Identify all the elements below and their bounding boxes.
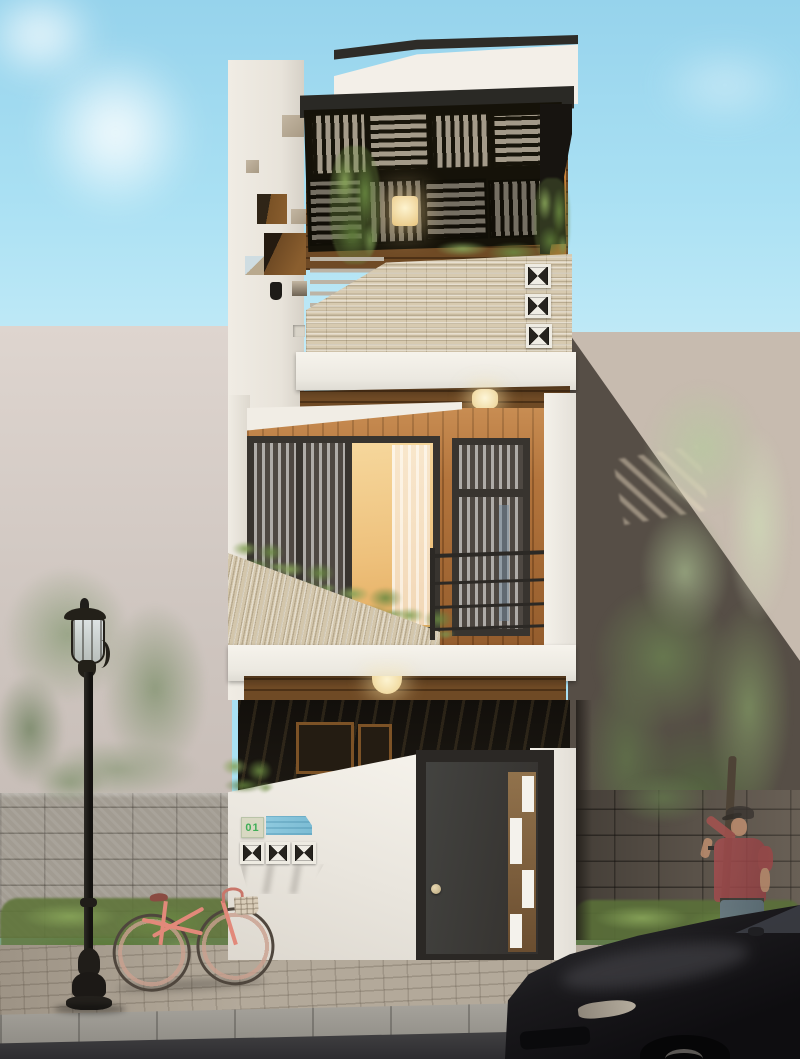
glass-strip-white — [510, 818, 522, 864]
lamp-ring — [80, 898, 97, 907]
glass-strip-white — [522, 776, 534, 812]
door-knob — [431, 884, 441, 894]
wall-niche — [264, 233, 306, 275]
breeze-block — [525, 264, 551, 288]
hanging-vine — [330, 146, 380, 264]
wall-niche — [246, 160, 259, 173]
mid-ceiling-light — [472, 389, 498, 409]
railing-rail — [430, 550, 554, 558]
car-mirror — [748, 927, 764, 936]
breeze-block — [526, 324, 552, 348]
lamp-scroll-arm — [92, 640, 110, 668]
pergola-panel — [424, 178, 488, 240]
bicycle — [101, 880, 267, 998]
railing-bar — [430, 624, 554, 631]
house-number: 01 — [245, 822, 259, 834]
breeze-block — [525, 294, 551, 318]
wall-niche — [282, 115, 304, 137]
railing-bar — [430, 578, 554, 585]
bike-basket — [234, 896, 259, 915]
balcony-wall-lamp — [392, 196, 418, 226]
bike-seat — [150, 893, 168, 902]
house-side-shadow — [576, 700, 592, 940]
architectural-render: 01 — [0, 0, 800, 1059]
name-plate — [266, 816, 312, 835]
breeze-block-vent — [266, 842, 290, 864]
pergola-panel — [368, 112, 430, 172]
house-number-sign: 01 — [241, 817, 264, 838]
lamp-base — [72, 972, 106, 998]
wall-niche — [293, 325, 305, 337]
pedestrian-torso — [714, 838, 766, 902]
door-transom — [459, 445, 523, 489]
tree-overhang-left — [20, 752, 120, 812]
pedestrian-hand-right — [760, 868, 770, 892]
interior-window — [296, 722, 354, 774]
mid-right-column — [544, 393, 576, 655]
wall-niche — [292, 281, 307, 296]
floor-slab — [296, 352, 576, 390]
breeze-block-vent — [240, 842, 264, 864]
lamp-shadow — [54, 1004, 126, 1014]
wall-top-shrub — [216, 754, 278, 796]
breeze-block-vent — [292, 842, 316, 864]
wall-niche — [245, 256, 264, 275]
facade-sconce — [270, 282, 282, 300]
wall-niche — [291, 209, 306, 224]
pergola-panel — [430, 112, 492, 170]
mid-railing — [430, 546, 554, 642]
railing-bar — [430, 602, 554, 609]
porch-soffit — [244, 676, 566, 702]
railing-post — [430, 548, 435, 640]
car — [505, 905, 800, 1059]
glass-strip-white — [522, 870, 534, 908]
wall-niche — [257, 194, 287, 224]
